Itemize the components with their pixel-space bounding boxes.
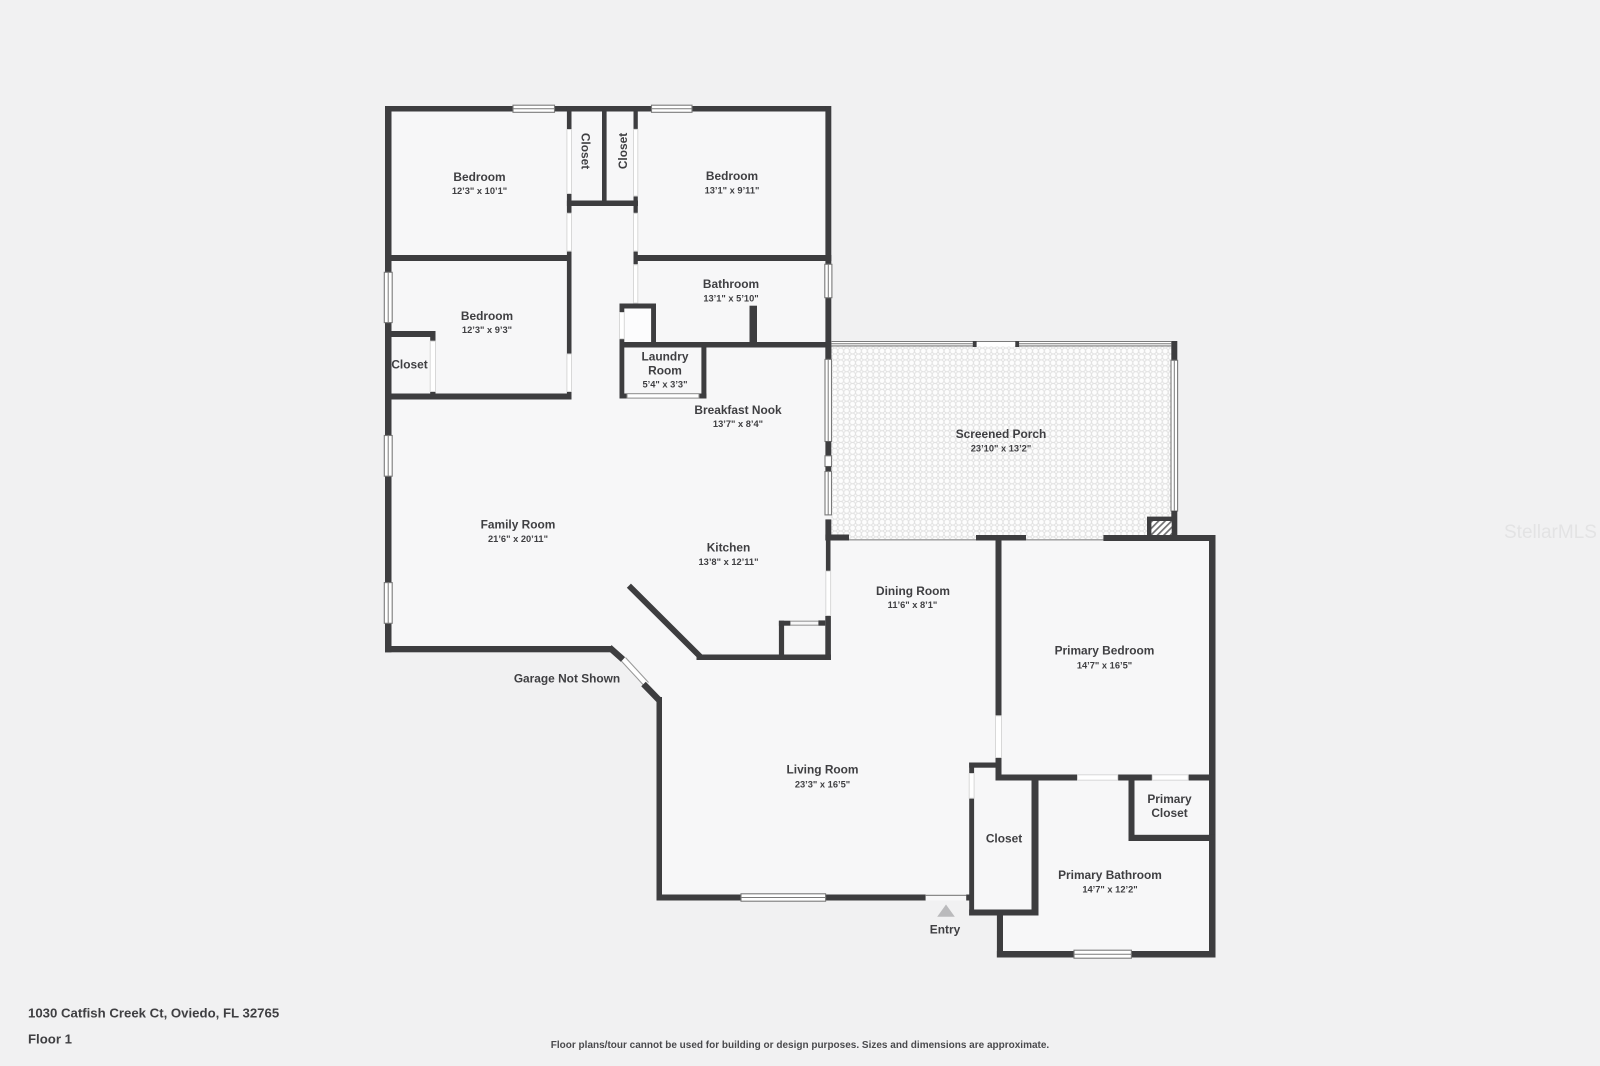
- svg-text:11’6" x 8’1": 11’6" x 8’1": [888, 600, 938, 610]
- svg-text:Kitchen: Kitchen: [707, 541, 751, 555]
- svg-text:StellarMLS: StellarMLS: [1504, 522, 1597, 543]
- svg-text:Closet: Closet: [1151, 806, 1187, 820]
- svg-text:1030 Catfish Creek Ct, Oviedo,: 1030 Catfish Creek Ct, Oviedo, FL 32765: [28, 1006, 279, 1021]
- svg-text:21’6" x 20’11": 21’6" x 20’11": [488, 534, 548, 544]
- svg-text:14’7" x 12’2": 14’7" x 12’2": [1082, 885, 1137, 895]
- svg-text:Bathroom: Bathroom: [703, 277, 759, 291]
- svg-text:Family Room: Family Room: [481, 518, 556, 532]
- svg-text:Screened Porch: Screened Porch: [956, 427, 1047, 441]
- svg-text:Closet: Closet: [579, 133, 593, 169]
- svg-text:Bedroom: Bedroom: [706, 169, 758, 183]
- svg-text:13’8" x 12’11": 13’8" x 12’11": [699, 557, 759, 567]
- svg-text:Laundry: Laundry: [642, 350, 689, 364]
- svg-text:Entry: Entry: [930, 923, 961, 937]
- svg-text:Breakfast Nook: Breakfast Nook: [694, 403, 782, 417]
- svg-text:Garage Not Shown: Garage Not Shown: [514, 672, 620, 686]
- svg-text:Room: Room: [648, 364, 682, 378]
- svg-text:12’3" x 10’1": 12’3" x 10’1": [452, 186, 507, 196]
- svg-text:Primary: Primary: [1147, 792, 1192, 806]
- svg-text:Closet: Closet: [616, 133, 630, 169]
- svg-text:12’3" x 9’3": 12’3" x 9’3": [462, 325, 512, 335]
- svg-text:Primary Bathroom: Primary Bathroom: [1058, 868, 1162, 882]
- svg-text:14’7" x 16’5": 14’7" x 16’5": [1077, 661, 1132, 671]
- svg-text:5’4" x 3’3": 5’4" x 3’3": [642, 380, 687, 390]
- svg-text:13’7" x 8’4": 13’7" x 8’4": [713, 419, 763, 429]
- svg-text:Floor 1: Floor 1: [28, 1032, 72, 1047]
- svg-text:Dining Room: Dining Room: [876, 584, 950, 598]
- svg-text:23’10" x 13’2": 23’10" x 13’2": [971, 444, 1032, 454]
- svg-text:13’1" x 9’11": 13’1" x 9’11": [705, 186, 760, 196]
- svg-text:Bedroom: Bedroom: [461, 309, 513, 323]
- svg-text:13’1" x 5’10": 13’1" x 5’10": [703, 294, 758, 304]
- svg-text:23’3" x 16’5": 23’3" x 16’5": [795, 780, 850, 790]
- svg-text:Primary Bedroom: Primary Bedroom: [1055, 644, 1155, 658]
- svg-text:Bedroom: Bedroom: [453, 170, 505, 184]
- svg-text:Closet: Closet: [986, 832, 1022, 846]
- svg-text:Floor plans/tour cannot be use: Floor plans/tour cannot be used for buil…: [551, 1040, 1050, 1051]
- svg-text:Living Room: Living Room: [787, 763, 859, 777]
- svg-text:Closet: Closet: [391, 358, 427, 372]
